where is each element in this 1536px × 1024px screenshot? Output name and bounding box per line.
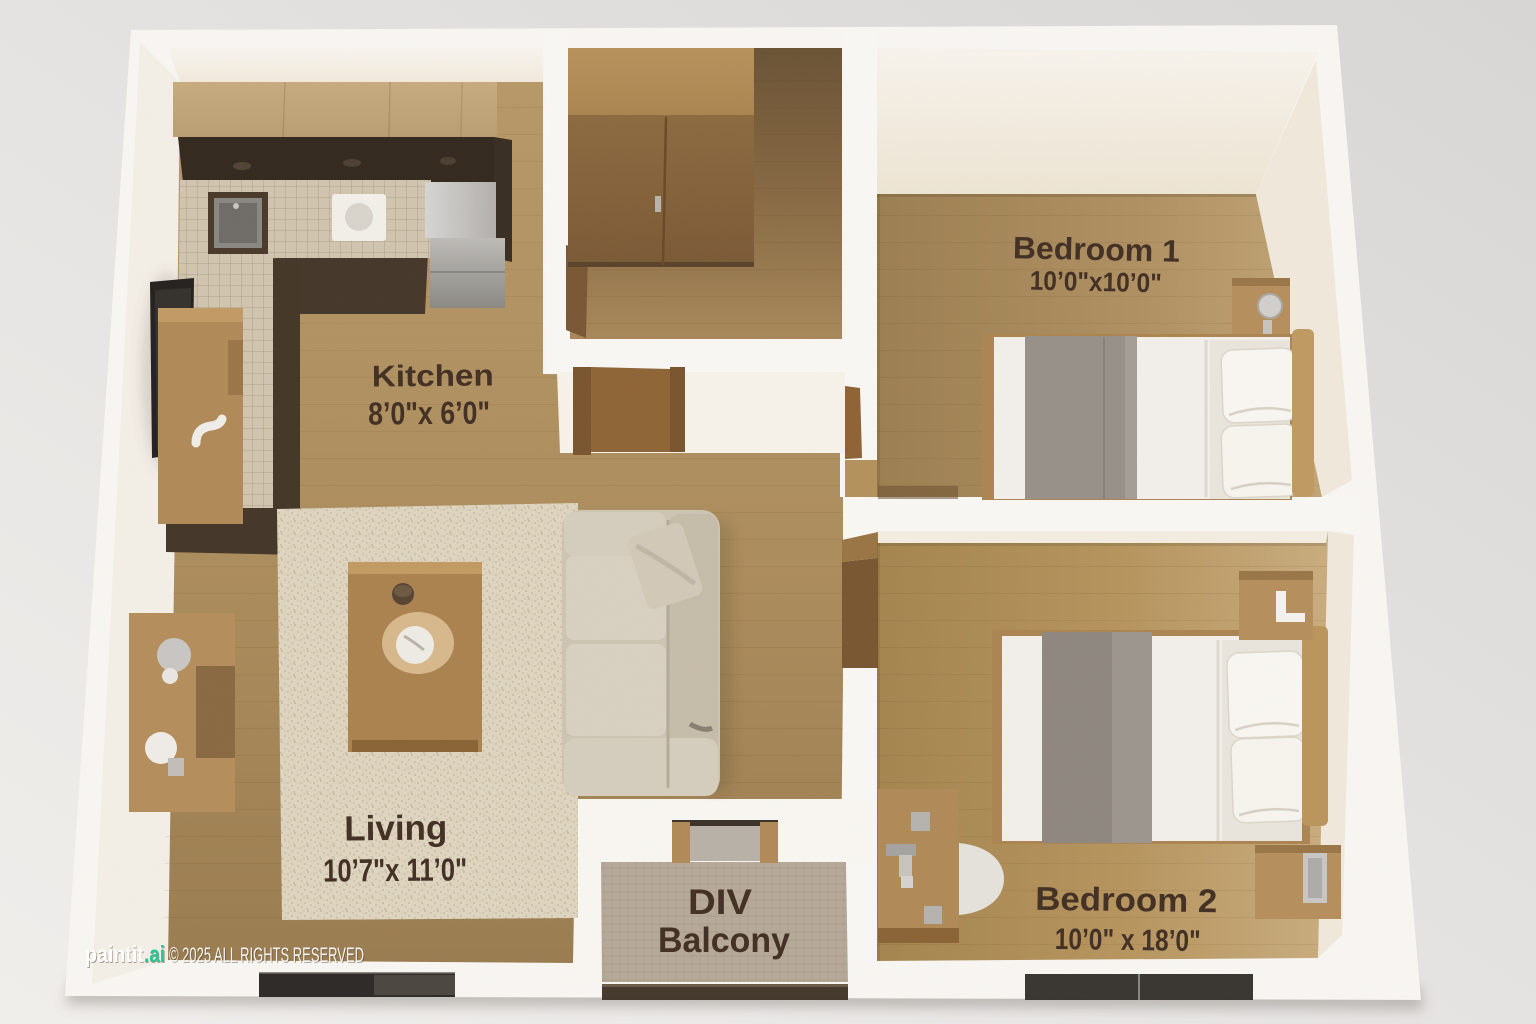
svg-text:10’0"x10’0": 10’0"x10’0" — [1029, 266, 1162, 299]
svg-text:Balcony: Balcony — [658, 921, 791, 960]
svg-text:Bedroom 1: Bedroom 1 — [1013, 230, 1181, 268]
svg-text:8’0"x 6’0": 8’0"x 6’0" — [368, 395, 490, 432]
svg-text:10’0" x 18’0": 10’0" x 18’0" — [1054, 923, 1200, 958]
svg-text:© 2025 ALL RIGHTS RESERVED: © 2025 ALL RIGHTS RESERVED — [169, 944, 364, 967]
svg-text:Kitchen: Kitchen — [372, 359, 494, 393]
svg-text:Living: Living — [344, 809, 447, 849]
svg-text:paintit: paintit — [85, 941, 144, 967]
svg-text:Bedroom 2: Bedroom 2 — [1035, 880, 1217, 920]
svg-text:10’7"x 11’0": 10’7"x 11’0" — [323, 851, 467, 888]
svg-text:DIV: DIV — [688, 883, 753, 922]
svg-text:.ai: .ai — [144, 941, 165, 967]
